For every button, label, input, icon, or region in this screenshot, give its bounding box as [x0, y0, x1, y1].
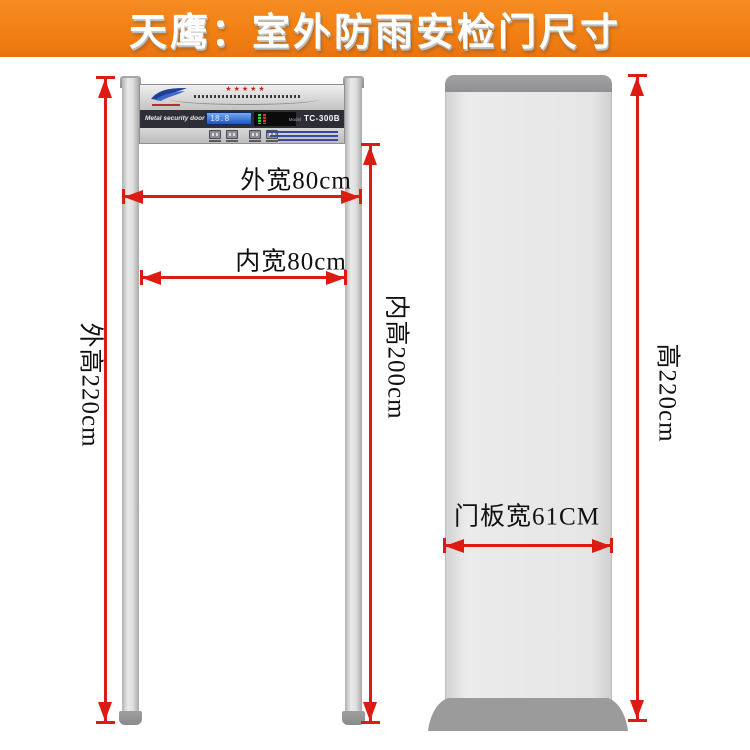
inner-width-dimension-line: [140, 269, 347, 286]
decorative-arc: [170, 93, 320, 105]
company-info-line: [270, 135, 338, 137]
side-height-dimension-line: [628, 74, 647, 722]
dimension-line: [104, 78, 107, 722]
inner-height-dimension-line: [361, 143, 380, 724]
dimension-cap: [628, 719, 647, 722]
arrow-down-icon: [363, 702, 377, 721]
dimension-cap: [361, 721, 380, 724]
panel-width-label: 门板宽61CM: [454, 505, 600, 530]
lcd-display: 18.8: [206, 112, 252, 125]
panel-width-dimension-line: [443, 537, 613, 554]
page-title: 天鹰：室外防雨安检门尺寸: [129, 1, 621, 56]
button-caption-line: [266, 140, 278, 142]
model-number: TC-300B: [304, 114, 340, 123]
product-dimension-diagram: 天鹰：室外防雨安检门尺寸 ★★★★★ Metal security: [0, 0, 750, 750]
arrow-down-icon: [98, 702, 112, 721]
logo-subtext-line: [152, 104, 180, 106]
company-info-line: [278, 139, 338, 141]
inner-height-label: 内高200cm: [384, 294, 409, 419]
select-button: [226, 130, 238, 139]
arrow-right-icon: [592, 539, 611, 553]
button-caption-line: [226, 140, 238, 142]
dimension-cap: [344, 270, 347, 285]
dimension-cap: [96, 721, 115, 724]
left-pillar: [122, 78, 139, 724]
model-label: Model: [289, 117, 301, 122]
control-head-unit: ★★★★★ Metal security door 18.8 Model TC-…: [139, 84, 345, 144]
button-caption-line: [209, 140, 221, 142]
company-info-line: [266, 131, 338, 133]
outer-width-dimension-line: [122, 188, 362, 205]
outer-height-label: 外高220cm: [78, 322, 103, 447]
head-unit-display-band: Metal security door 18.8 Model TC-300B: [140, 110, 344, 128]
arrow-right-icon: [326, 271, 345, 285]
dimension-line: [369, 145, 372, 722]
side-height-label: 高220cm: [655, 343, 680, 442]
side-panel: [445, 92, 612, 700]
up-button: [249, 130, 261, 139]
power-button: [209, 130, 221, 139]
arrow-down-icon: [630, 700, 644, 719]
left-pillar-foot: [119, 711, 142, 725]
dimension-cap: [359, 189, 362, 204]
dimension-line: [445, 544, 611, 547]
led-column-red-icon: [263, 114, 266, 124]
dimension-line: [142, 276, 345, 279]
arrow-right-icon: [341, 190, 360, 204]
dimension-line: [124, 195, 360, 198]
side-panel-base: [427, 698, 629, 731]
side-panel-top-cap: [445, 75, 612, 93]
button-caption-line: [249, 140, 261, 142]
dimension-line: [636, 76, 639, 720]
band-brand-label: Metal security door: [145, 115, 205, 122]
head-unit-button-panel: [140, 128, 344, 143]
model-badge: Model TC-300B: [289, 114, 340, 123]
led-column-green-icon: [258, 114, 261, 124]
title-banner: 天鹰：室外防雨安检门尺寸: [0, 0, 750, 57]
dimension-cap: [610, 538, 613, 553]
head-unit-top-panel: ★★★★★: [140, 85, 344, 110]
